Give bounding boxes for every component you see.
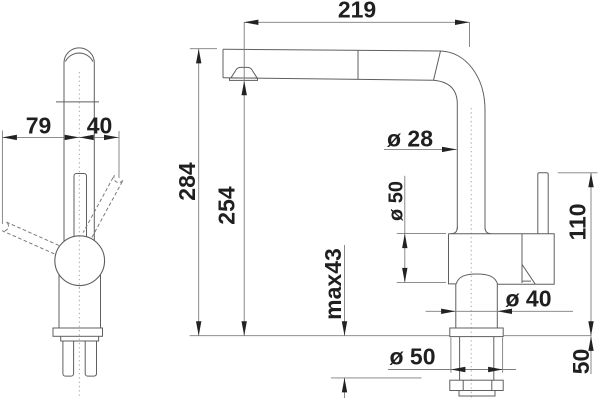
svg-text:ø 50: ø 50 [389, 344, 435, 370]
svg-text:40: 40 [87, 113, 113, 139]
svg-text:284: 284 [174, 162, 200, 201]
svg-text:50: 50 [568, 349, 594, 375]
svg-text:254: 254 [214, 186, 240, 225]
svg-text:ø 40: ø 40 [505, 286, 551, 312]
svg-text:79: 79 [26, 113, 52, 139]
svg-text:219: 219 [338, 0, 376, 23]
svg-text:ø 28: ø 28 [387, 125, 433, 151]
svg-text:max43: max43 [320, 248, 346, 320]
svg-text:110: 110 [565, 203, 591, 240]
svg-text:ø 50: ø 50 [386, 181, 408, 221]
